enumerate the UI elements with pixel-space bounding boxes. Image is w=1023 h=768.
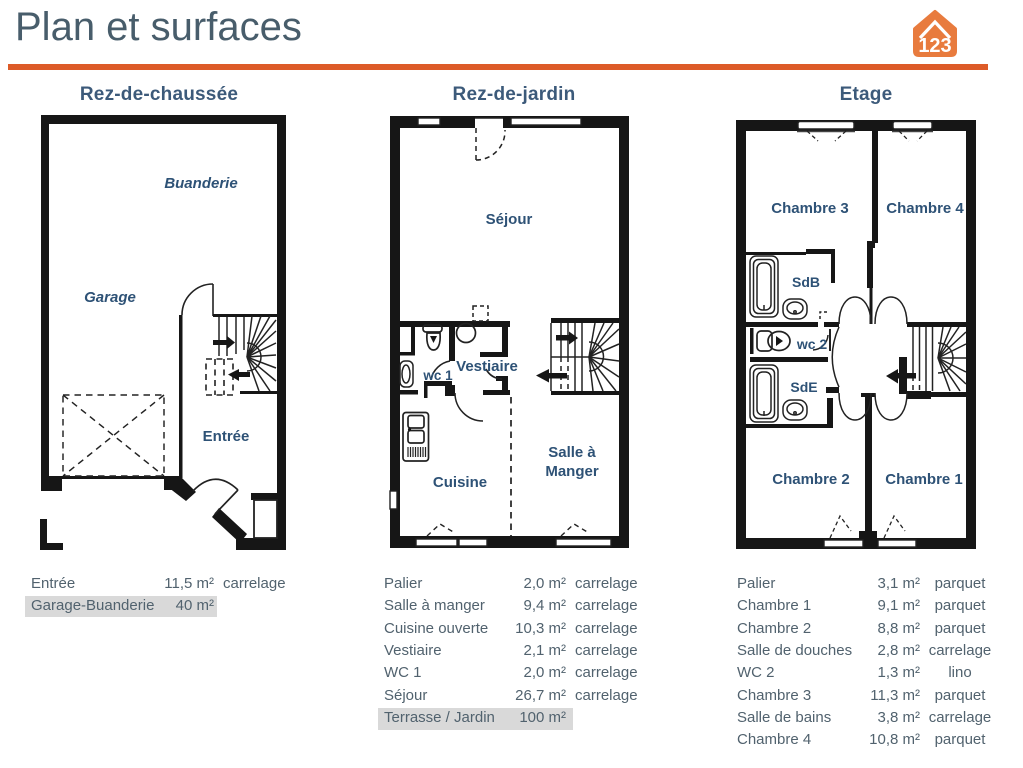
- svg-text:Salle à: Salle à: [548, 444, 596, 461]
- svg-text:SdB: SdB: [792, 274, 820, 290]
- svg-text:123: 123: [918, 35, 951, 57]
- svg-text:wc 1: wc 1: [422, 368, 453, 383]
- svg-text:Entrée: Entrée: [203, 428, 250, 445]
- svg-text:Garage: Garage: [84, 289, 136, 306]
- svg-text:Chambre 4: Chambre 4: [886, 200, 964, 217]
- svg-text:Chambre 2: Chambre 2: [772, 471, 850, 488]
- svg-text:Buanderie: Buanderie: [164, 175, 237, 192]
- svg-text:wc 2: wc 2: [796, 336, 828, 352]
- svg-text:Chambre 1: Chambre 1: [885, 471, 963, 488]
- svg-text:Cuisine: Cuisine: [433, 474, 487, 491]
- svg-text:SdE: SdE: [790, 379, 817, 395]
- svg-text:Chambre 3: Chambre 3: [771, 200, 849, 217]
- svg-text:Séjour: Séjour: [486, 211, 533, 228]
- svg-text:Vestiaire: Vestiaire: [456, 358, 518, 375]
- svg-text:Manger: Manger: [545, 463, 599, 480]
